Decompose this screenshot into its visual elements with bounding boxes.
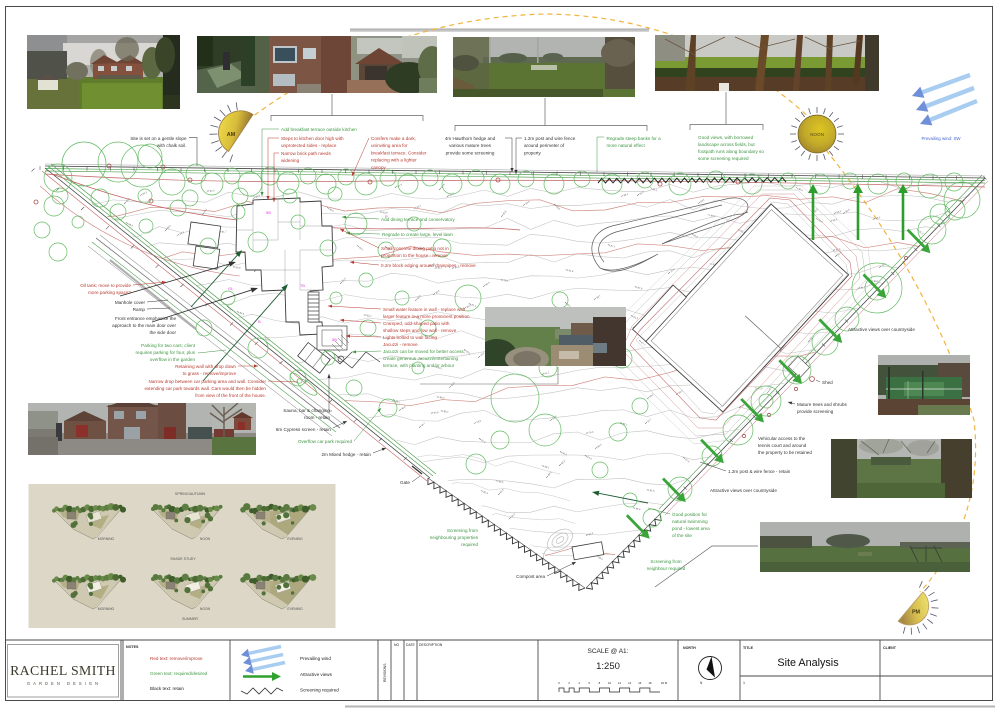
svg-text:Prevailing wind: SW: Prevailing wind: SW <box>921 136 961 141</box>
svg-text:Small concrete dining patio no: Small concrete dining patio not in <box>381 246 449 251</box>
svg-text:from view of the front of the: from view of the front of the house. <box>195 393 266 398</box>
svg-text:Narrow drop between car parkin: Narrow drop between car parking area and… <box>149 379 267 384</box>
svg-text:Manhole cover: Manhole cover <box>115 300 146 305</box>
svg-text:EVENING: EVENING <box>287 537 303 541</box>
svg-text:replacing with a lighter: replacing with a lighter <box>371 158 417 163</box>
svg-text:Lights bolted to wall facing: Lights bolted to wall facing <box>383 335 437 340</box>
svg-text:NOTES: NOTES <box>126 645 139 649</box>
svg-text:of the site: of the site <box>672 533 692 538</box>
svg-text:pond - lowest area: pond - lowest area <box>672 526 710 531</box>
svg-text:Red text: remove/improve: Red text: remove/improve <box>150 656 203 661</box>
svg-text:the property to be retained: the property to be retained <box>758 450 812 455</box>
svg-text:Regrade steep banks for a: Regrade steep banks for a <box>607 136 662 141</box>
svg-text:around perimeter of: around perimeter of <box>524 143 565 148</box>
svg-text:TITLE: TITLE <box>743 646 754 650</box>
svg-text:SPRING/AUTUMN: SPRING/AUTUMN <box>175 492 206 496</box>
svg-text:room - retain: room - retain <box>304 415 330 420</box>
svg-text:required: required <box>461 542 478 547</box>
svg-text:landscape across fields, but: landscape across fields, but <box>698 142 755 147</box>
svg-text:5B: 5B <box>266 210 271 215</box>
svg-text:Attractive views: Attractive views <box>300 672 333 677</box>
svg-text:overflow in the garden: overflow in the garden <box>150 357 196 362</box>
svg-text:the side door: the side door <box>149 330 176 335</box>
svg-text:14: 14 <box>628 681 632 685</box>
svg-text:provide screening: provide screening <box>797 409 834 414</box>
svg-text:natural swimming: natural swimming <box>672 519 708 524</box>
svg-text:Cramped, odd-shaped patio with: Cramped, odd-shaped patio with <box>383 321 450 326</box>
svg-text:property: property <box>524 150 542 155</box>
svg-text:Screening from: Screening from <box>650 559 681 564</box>
svg-text:EVENING: EVENING <box>287 607 303 611</box>
svg-text:Parking for two cars; client: Parking for two cars; client <box>141 343 196 348</box>
svg-text:DATE: DATE <box>406 643 416 647</box>
svg-text:Screening from: Screening from <box>447 528 478 533</box>
svg-text:RACHEL SMITH: RACHEL SMITH <box>10 663 116 678</box>
svg-text:10: 10 <box>608 681 612 685</box>
svg-text:uninviting area for: uninviting area for <box>371 143 408 148</box>
svg-text:Narrow brick path needs: Narrow brick path needs <box>281 151 331 156</box>
svg-text:to grass - remove/improve: to grass - remove/improve <box>183 371 237 376</box>
svg-text:Overflow car park required: Overflow car park required <box>298 439 353 444</box>
svg-text:2m Mixed hedge - retain: 2m Mixed hedge - retain <box>321 452 371 457</box>
svg-text:Compost area: Compost area <box>516 574 545 579</box>
svg-text:Good position for: Good position for <box>672 512 707 517</box>
svg-text:requires parking for four, plu: requires parking for four, plus <box>136 350 196 355</box>
svg-text:12: 12 <box>618 681 622 685</box>
svg-text:16: 16 <box>638 681 642 685</box>
svg-text:GARDEN DESIGN: GARDEN DESIGN <box>27 681 101 686</box>
svg-text:DESCRIPTION: DESCRIPTION <box>419 643 443 647</box>
svg-text:NOON: NOON <box>810 132 824 137</box>
svg-text:7B: 7B <box>300 283 305 288</box>
svg-text:0.2m block edging around drain: 0.2m block edging around drainpipes - re… <box>381 263 476 268</box>
svg-text:more natural effect: more natural effect <box>607 143 646 148</box>
svg-text:SHADE STUDY: SHADE STUDY <box>170 557 196 561</box>
svg-text:6m Cypress screen - retain: 6m Cypress screen - retain <box>276 427 332 432</box>
svg-text:Oil tank; move to provide: Oil tank; move to provide <box>80 283 131 288</box>
svg-text:footpath runs along boundary s: footpath runs along boundary so <box>698 149 764 154</box>
svg-text:Front entrance emphasise the: Front entrance emphasise the <box>115 316 176 321</box>
svg-text:Prevailing wind: Prevailing wind <box>300 656 331 661</box>
svg-text:Black text: retain: Black text: retain <box>150 686 184 691</box>
svg-text:Site is set on a gentle slope: Site is set on a gentle slope <box>130 136 187 141</box>
svg-text:B: B <box>258 319 261 324</box>
svg-text:1.2m post & wire fence - retai: 1.2m post & wire fence - retain <box>728 469 791 474</box>
svg-text:MORNING: MORNING <box>98 607 115 611</box>
svg-text:tennis court and around: tennis court and around <box>758 443 807 448</box>
svg-text:1: 1 <box>743 681 745 685</box>
svg-text:approach to the main door over: approach to the main door over <box>112 323 176 328</box>
svg-text:Green text: required/desired: Green text: required/desired <box>150 671 208 676</box>
svg-text:unprotected sides - replace: unprotected sides - replace <box>281 143 337 148</box>
svg-text:NORTH: NORTH <box>683 646 696 650</box>
svg-text:larger feature in a more promi: larger feature in a more prominent posit… <box>383 314 470 319</box>
svg-text:terrace, with planting and/or: terrace, with planting and/or arbour <box>383 363 455 368</box>
svg-text:Attractive views over countrys: Attractive views over countryside <box>710 488 777 493</box>
svg-text:Vehicular access to the: Vehicular access to the <box>758 436 806 441</box>
svg-text:NOON: NOON <box>200 607 211 611</box>
svg-text:proportion to the house - remo: proportion to the house - remove <box>381 253 448 258</box>
svg-text:CLIENT: CLIENT <box>883 646 897 650</box>
svg-text:Mature trees and shrubs: Mature trees and shrubs <box>797 402 847 407</box>
svg-text:Regrade to create large, level: Regrade to create large, level lawn <box>382 232 453 237</box>
svg-text:Steps to kitchen door high wit: Steps to kitchen door high with <box>281 136 344 141</box>
svg-text:various mature trees: various mature trees <box>449 143 492 148</box>
svg-text:MORNING: MORNING <box>98 537 115 541</box>
svg-text:5B: 5B <box>332 337 337 342</box>
svg-text:Conifers make a dark,: Conifers make a dark, <box>371 136 416 141</box>
svg-text:Screening required: Screening required <box>300 688 339 693</box>
svg-text:20 M: 20 M <box>661 681 668 685</box>
svg-text:breakfast terrace. Consider: breakfast terrace. Consider <box>371 150 427 155</box>
svg-text:Jacuzzi can be moved for bette: Jacuzzi can be moved for better access; <box>383 349 465 354</box>
svg-text:Good views, with borrowed: Good views, with borrowed <box>698 135 754 140</box>
svg-text:AM: AM <box>227 132 236 138</box>
svg-text:NO: NO <box>394 643 399 647</box>
svg-text:create generous Jacuzzi/entert: create generous Jacuzzi/entertaining <box>383 356 459 361</box>
svg-text:Ramp: Ramp <box>133 307 146 312</box>
svg-text:canopy: canopy <box>371 165 387 170</box>
svg-text:provide some screening: provide some screening <box>446 150 495 155</box>
svg-text:4m Hawthorn hedge and: 4m Hawthorn hedge and <box>445 136 496 141</box>
svg-text:more parking space?: more parking space? <box>88 290 131 295</box>
svg-text:SCALE @ A1:: SCALE @ A1: <box>588 648 629 655</box>
svg-text:NOON: NOON <box>200 537 211 541</box>
svg-text:Retaining wall with drop down: Retaining wall with drop down <box>175 364 236 369</box>
svg-text:Attractive views over countrys: Attractive views over countryside <box>848 327 915 332</box>
svg-text:REVISIONS: REVISIONS <box>383 663 387 682</box>
svg-text:Add dining terrace and conserv: Add dining terrace and conservatory <box>381 217 456 222</box>
svg-text:with chalk soil.: with chalk soil. <box>157 143 187 148</box>
svg-text:Jacuzzi - remove: Jacuzzi - remove <box>383 342 418 347</box>
svg-text:PM: PM <box>912 610 921 616</box>
svg-text:Add breakfast terrace outside: Add breakfast terrace outside kitchen <box>281 127 357 132</box>
svg-text:some screening required: some screening required <box>698 156 749 161</box>
svg-text:shallow steps and low wall - r: shallow steps and low wall - remove <box>383 328 457 333</box>
svg-text:neighbouring properties: neighbouring properties <box>430 535 479 540</box>
svg-text:1:250: 1:250 <box>596 661 620 672</box>
svg-text:18: 18 <box>648 681 652 685</box>
svg-text:Site Analysis: Site Analysis <box>777 657 839 669</box>
svg-text:Small water feature in wall -: Small water feature in wall - replace wi… <box>383 307 466 312</box>
svg-text:Shed: Shed <box>822 380 833 385</box>
svg-text:Gate: Gate <box>400 480 410 485</box>
svg-text:GL: GL <box>228 286 234 291</box>
svg-text:82.9: 82.9 <box>758 387 763 390</box>
svg-text:Sauna, bar & changing: Sauna, bar & changing <box>283 408 330 413</box>
svg-text:89.1: 89.1 <box>874 280 879 283</box>
svg-text:SUMMER: SUMMER <box>182 617 198 621</box>
svg-text:extending car park towards wal: extending car park towards wall. Cars wo… <box>144 386 266 391</box>
svg-text:1.2m post and wire fence: 1.2m post and wire fence <box>524 136 576 141</box>
svg-text:neighbour required: neighbour required <box>647 566 686 571</box>
svg-text:widening: widening <box>281 158 300 163</box>
